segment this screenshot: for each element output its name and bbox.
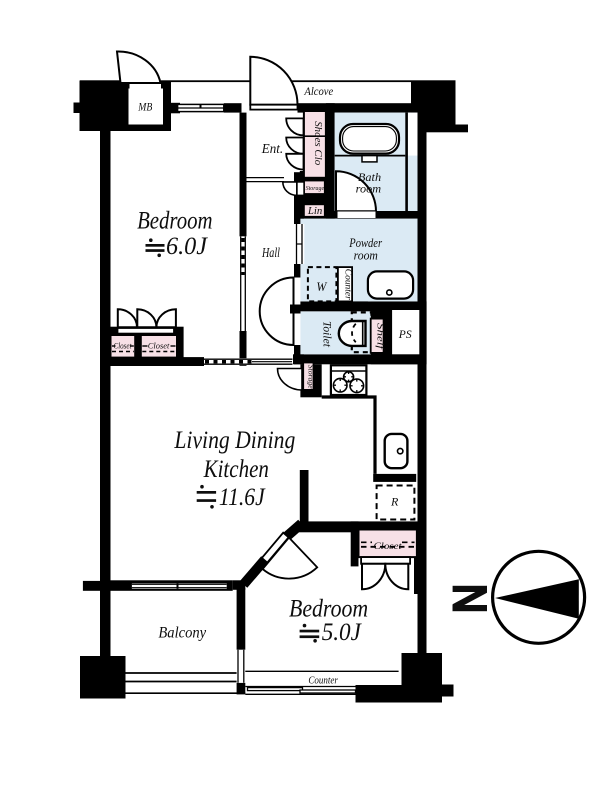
svg-text:Hall: Hall bbox=[261, 245, 280, 260]
svg-text:Counter: Counter bbox=[342, 269, 352, 300]
svg-text:Closet: Closet bbox=[374, 541, 403, 551]
svg-text:6.0J: 6.0J bbox=[166, 233, 209, 260]
svg-text:MB: MB bbox=[137, 99, 152, 113]
svg-text:Alcove: Alcove bbox=[304, 84, 334, 98]
svg-text:room: room bbox=[354, 248, 378, 262]
svg-text:room: room bbox=[356, 182, 382, 196]
svg-text:Ent.: Ent. bbox=[261, 141, 283, 156]
svg-text:Living Dining: Living Dining bbox=[174, 425, 296, 454]
svg-text:Closet: Closet bbox=[114, 342, 133, 351]
svg-text:Storage: Storage bbox=[306, 185, 325, 192]
svg-text:Storage: Storage bbox=[306, 365, 315, 390]
svg-text:PS: PS bbox=[398, 327, 412, 341]
svg-text:11.6J: 11.6J bbox=[219, 484, 266, 511]
svg-text:Balcony: Balcony bbox=[158, 625, 207, 642]
svg-text:Shelf: Shelf bbox=[374, 323, 385, 351]
svg-text:Kitchen: Kitchen bbox=[203, 454, 269, 483]
svg-text:R: R bbox=[390, 495, 399, 509]
svg-text:Counter: Counter bbox=[308, 675, 338, 686]
svg-text:Closet: Closet bbox=[148, 341, 170, 351]
svg-text:Toilet: Toilet bbox=[321, 321, 333, 348]
svg-text:W: W bbox=[316, 280, 328, 294]
svg-text:Bedroom: Bedroom bbox=[137, 208, 213, 235]
svg-text:5.0J: 5.0J bbox=[322, 619, 363, 646]
svg-text:Lin: Lin bbox=[307, 205, 323, 217]
svg-text:Shoes Clo: Shoes Clo bbox=[312, 121, 323, 165]
